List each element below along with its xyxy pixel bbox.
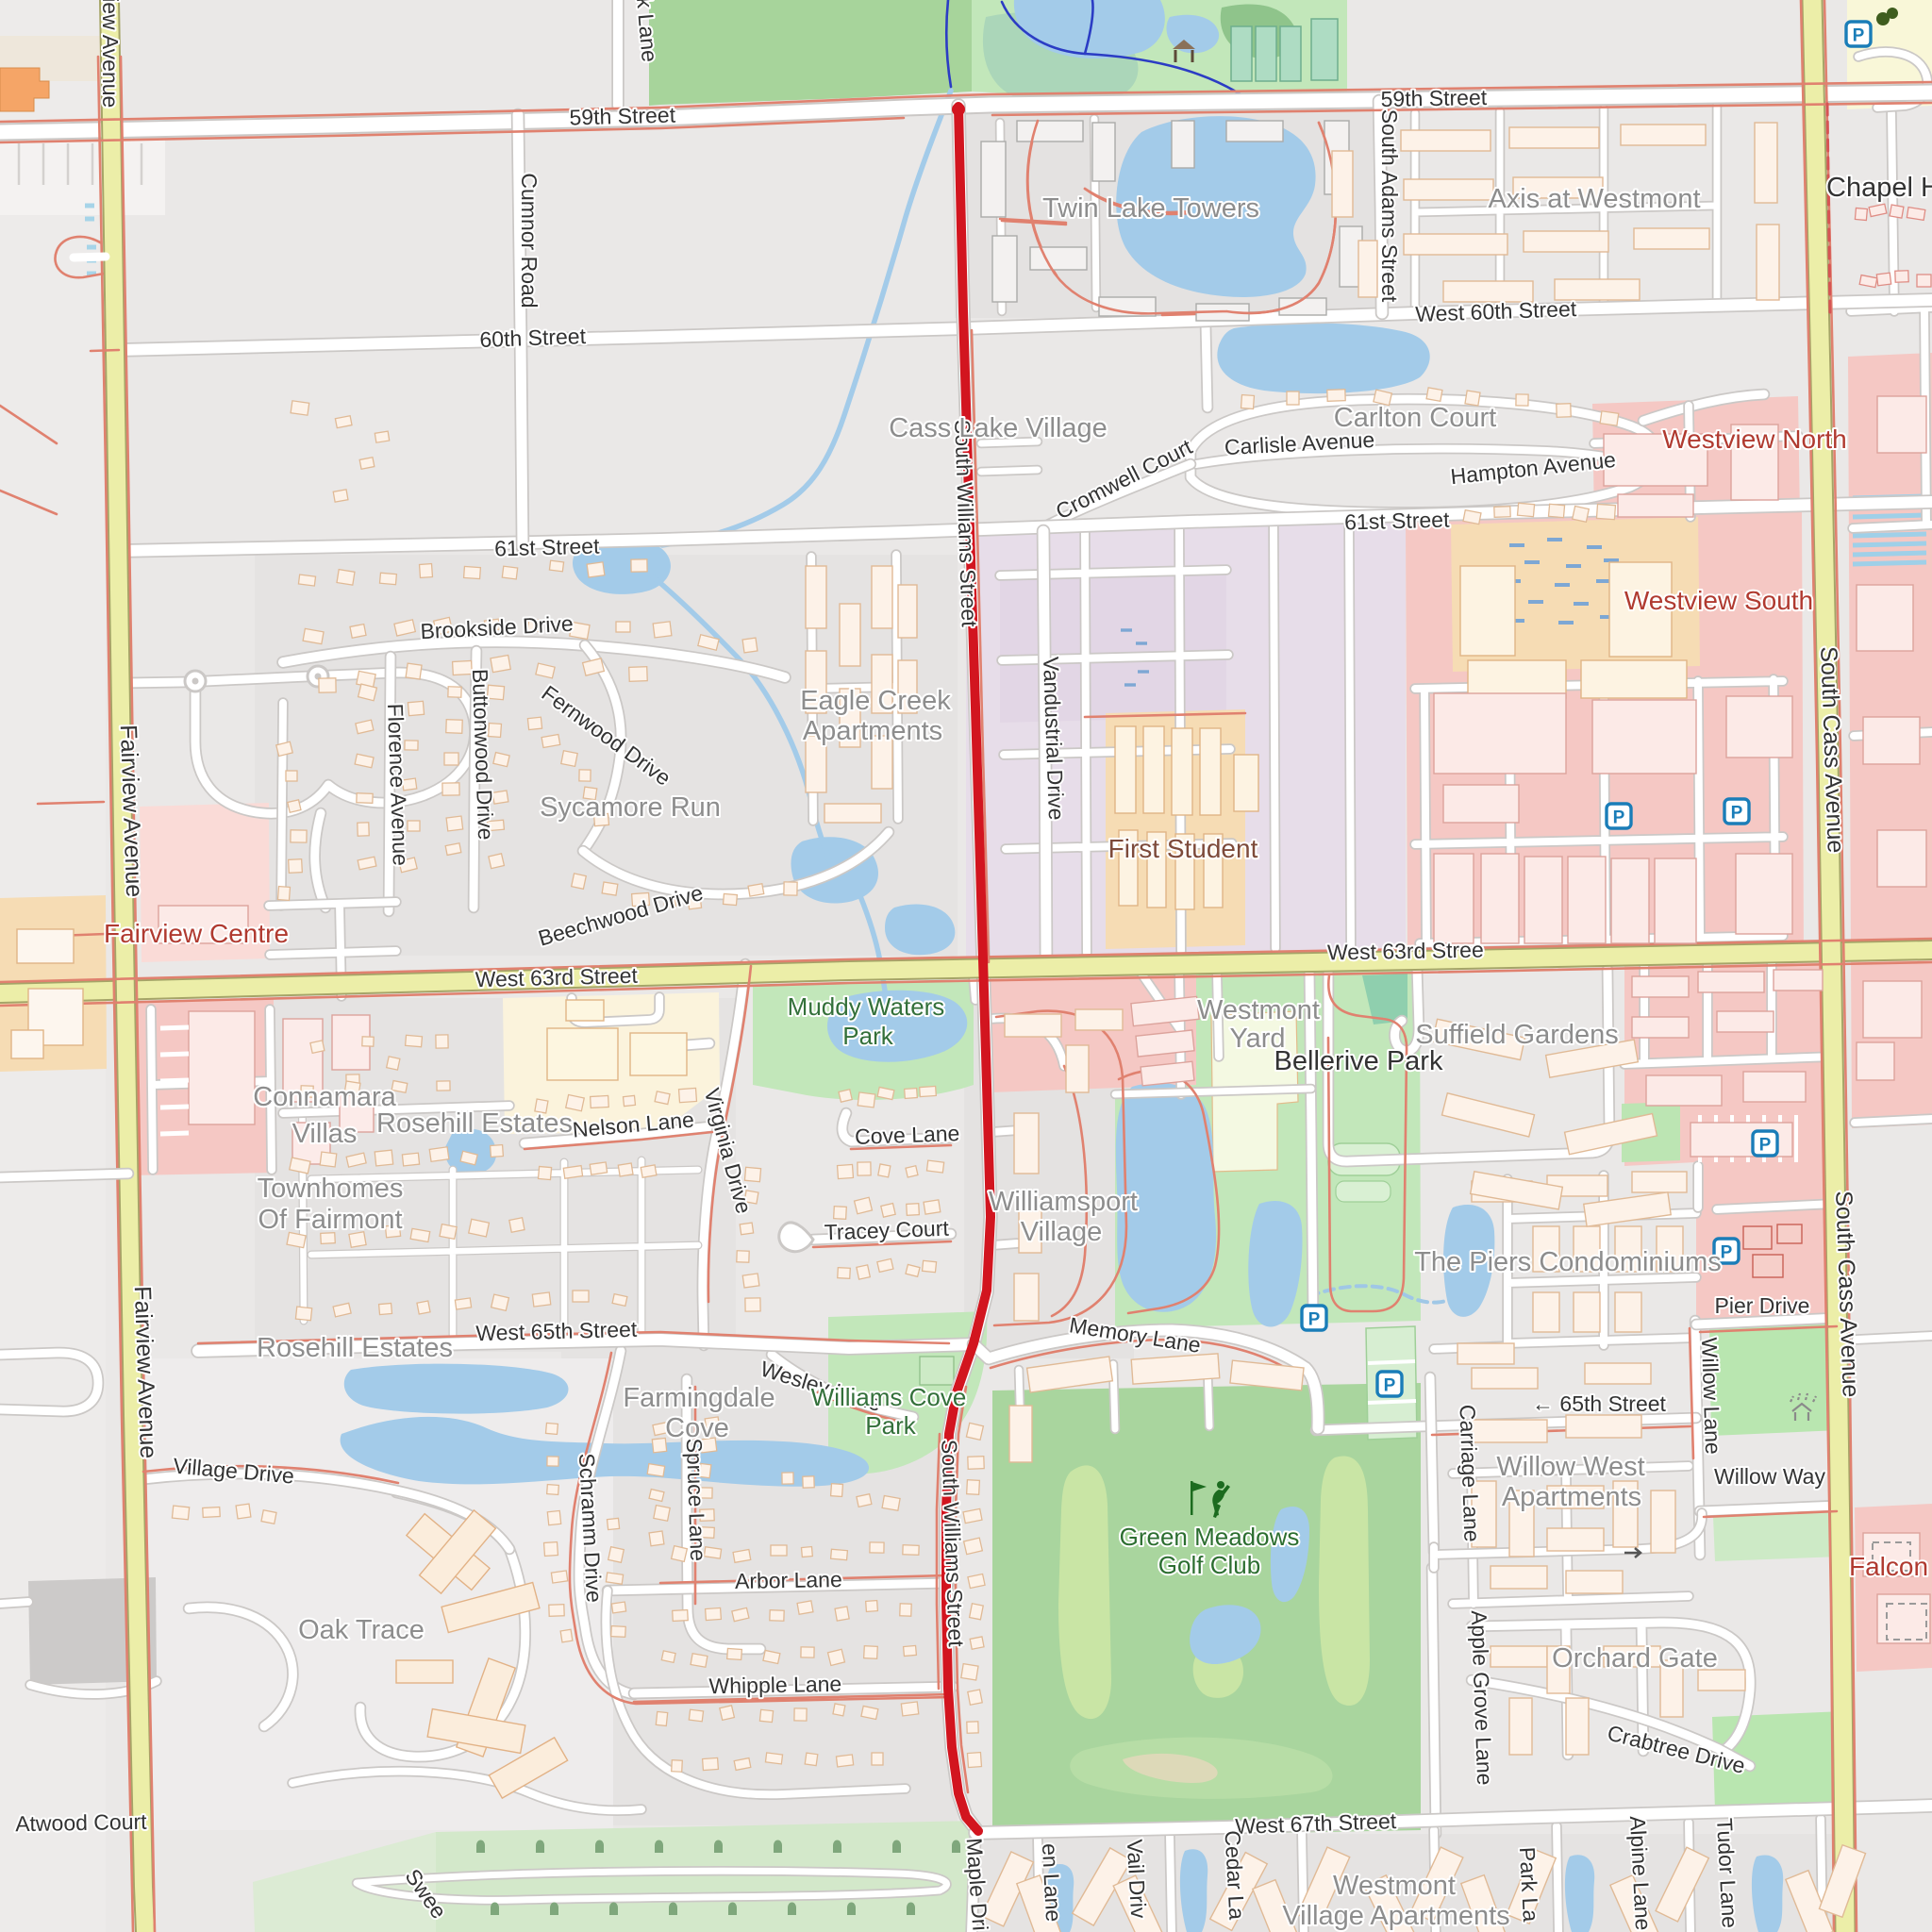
- svg-text:Sycamore Run: Sycamore Run: [540, 792, 721, 823]
- svg-text:Whipple Lane: Whipple Lane: [708, 1672, 841, 1698]
- svg-text:West 63rd Stree: West 63rd Stree: [1327, 938, 1484, 965]
- svg-text:Park: Park: [865, 1411, 916, 1440]
- svg-text:P: P: [1721, 1242, 1733, 1262]
- svg-text:Village Apartments: Village Apartments: [1282, 1901, 1509, 1931]
- svg-text:Cumnor Road: Cumnor Road: [517, 173, 541, 308]
- svg-text:Pier Drive: Pier Drive: [1715, 1293, 1810, 1318]
- svg-text:Williams Cove: Williams Cove: [811, 1383, 967, 1411]
- svg-text:P: P: [1308, 1309, 1321, 1329]
- svg-text:Falcon Park: Falcon Park: [1849, 1552, 1932, 1581]
- svg-text:Golf Club: Golf Club: [1158, 1551, 1260, 1579]
- svg-text:P: P: [1759, 1135, 1772, 1155]
- svg-text:Park La: Park La: [1515, 1846, 1543, 1923]
- svg-text:Willow West: Willow West: [1496, 1452, 1644, 1482]
- svg-text:West 65th Street: West 65th Street: [475, 1317, 638, 1345]
- svg-text:P: P: [1731, 803, 1743, 823]
- svg-text:Carriage Lane: Carriage Lane: [1455, 1404, 1484, 1542]
- svg-text:P: P: [1853, 25, 1865, 45]
- svg-text:Townhomes: Townhomes: [258, 1174, 404, 1204]
- svg-text:← 65th Street: ← 65th Street: [1532, 1391, 1667, 1416]
- svg-text:Apartments: Apartments: [1502, 1482, 1641, 1512]
- svg-text:West 63rd Street: West 63rd Street: [475, 963, 638, 992]
- svg-text:60th Street: 60th Street: [479, 324, 587, 352]
- svg-text:Cove: Cove: [665, 1413, 729, 1443]
- svg-text:59th Street: 59th Street: [569, 103, 676, 130]
- svg-text:en Lane: en Lane: [1038, 1842, 1066, 1922]
- svg-text:Park: Park: [842, 1022, 893, 1050]
- svg-text:Chapel Hill Gardens: Chapel Hill Gardens: [1826, 173, 1932, 203]
- svg-text:The Piers Condominiums: The Piers Condominiums: [1414, 1247, 1722, 1277]
- svg-text:First Student: First Student: [1108, 834, 1258, 863]
- svg-text:61st Street: 61st Street: [1344, 508, 1450, 535]
- svg-text:Apartments: Apartments: [803, 716, 942, 746]
- svg-text:Orchard Gate: Orchard Gate: [1552, 1643, 1718, 1674]
- svg-text:Bellerive Park: Bellerive Park: [1274, 1046, 1443, 1076]
- svg-text:Connamara: Connamara: [253, 1082, 396, 1112]
- svg-text:Eagle Creek: Eagle Creek: [800, 686, 951, 716]
- svg-text:Village: Village: [1021, 1217, 1103, 1247]
- svg-text:Muddy Waters: Muddy Waters: [788, 992, 945, 1021]
- svg-text:South Adams Street: South Adams Street: [1377, 109, 1402, 303]
- svg-text:Green Meadows: Green Meadows: [1120, 1523, 1300, 1551]
- svg-text:Fairview Centre: Fairview Centre: [104, 919, 289, 948]
- svg-text:Tracey Court: Tracey Court: [824, 1216, 950, 1245]
- svg-text:Axis at Westmont: Axis at Westmont: [1488, 184, 1700, 214]
- svg-text:P: P: [1384, 1375, 1396, 1395]
- svg-text:Westview North: Westview North: [1662, 425, 1847, 454]
- svg-text:Carlton Court: Carlton Court: [1334, 403, 1496, 433]
- svg-text:Of Fairmont: Of Fairmont: [258, 1205, 402, 1235]
- svg-text:Rosehill Estates: Rosehill Estates: [257, 1333, 453, 1363]
- svg-text:61st Street: 61st Street: [494, 534, 600, 561]
- svg-text:Willow Way: Willow Way: [1714, 1464, 1825, 1489]
- svg-text:Cove Lane: Cove Lane: [855, 1121, 960, 1149]
- svg-text:Suffield Gardens: Suffield Gardens: [1415, 1020, 1619, 1050]
- svg-text:Rosehill Estates: Rosehill Estates: [376, 1108, 573, 1139]
- svg-text:Williamsport: Williamsport: [989, 1187, 1138, 1217]
- svg-text:Villas: Villas: [292, 1119, 358, 1149]
- svg-text:59th Street: 59th Street: [1380, 85, 1488, 111]
- svg-text:Oak Trace: Oak Trace: [298, 1615, 425, 1645]
- svg-text:Cass Lake Village: Cass Lake Village: [889, 413, 1108, 443]
- svg-text:Westmont: Westmont: [1333, 1871, 1456, 1901]
- svg-text:P: P: [1613, 808, 1625, 827]
- svg-text:Arbor Lane: Arbor Lane: [735, 1567, 842, 1593]
- svg-text:Cedar La: Cedar La: [1221, 1830, 1250, 1921]
- svg-text:Willow Lane: Willow Lane: [1697, 1337, 1725, 1455]
- svg-text:Atwood Court: Atwood Court: [15, 1809, 147, 1836]
- svg-text:Farmingdale: Farmingdale: [623, 1383, 774, 1413]
- svg-text:Twin Lake Towers: Twin Lake Towers: [1042, 193, 1259, 224]
- svg-text:Westview South: Westview South: [1624, 586, 1813, 615]
- svg-text:view Avenue: view Avenue: [98, 0, 123, 108]
- svg-text:Vail Driv: Vail Driv: [1123, 1839, 1151, 1920]
- svg-text:Westmont: Westmont: [1197, 995, 1320, 1025]
- svg-text:Spruce Lane: Spruce Lane: [682, 1438, 711, 1561]
